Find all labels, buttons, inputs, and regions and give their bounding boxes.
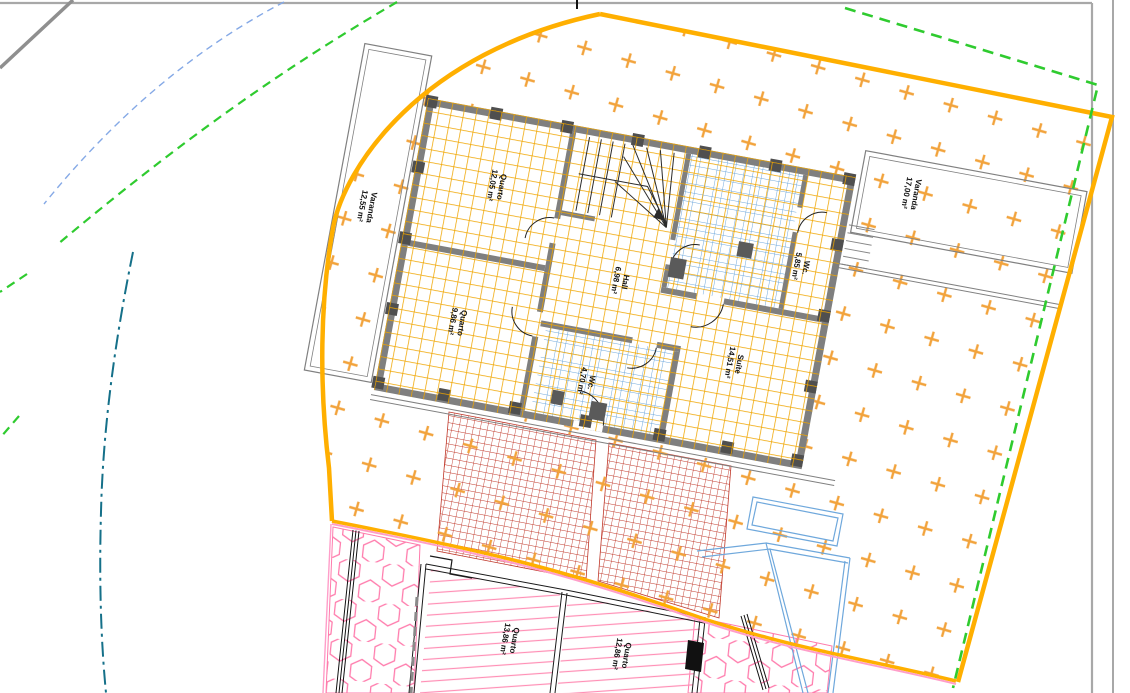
blue-dashed-curve [44, 2, 284, 204]
wall-section-cut [685, 640, 704, 672]
floorplan-canvas[interactable]: Quarto 13,86 m² Quarto 12,86 m² [0, 0, 1130, 693]
teal-dashdot-curve [100, 252, 133, 693]
lower-room-left [420, 569, 560, 693]
green-dashed-segments [0, 274, 27, 438]
hex-area-left [326, 527, 420, 693]
corner-diagonal-line [0, 0, 73, 68]
cad-drawing-page: Quarto 13,86 m² Quarto 12,86 m² [0, 0, 1130, 693]
